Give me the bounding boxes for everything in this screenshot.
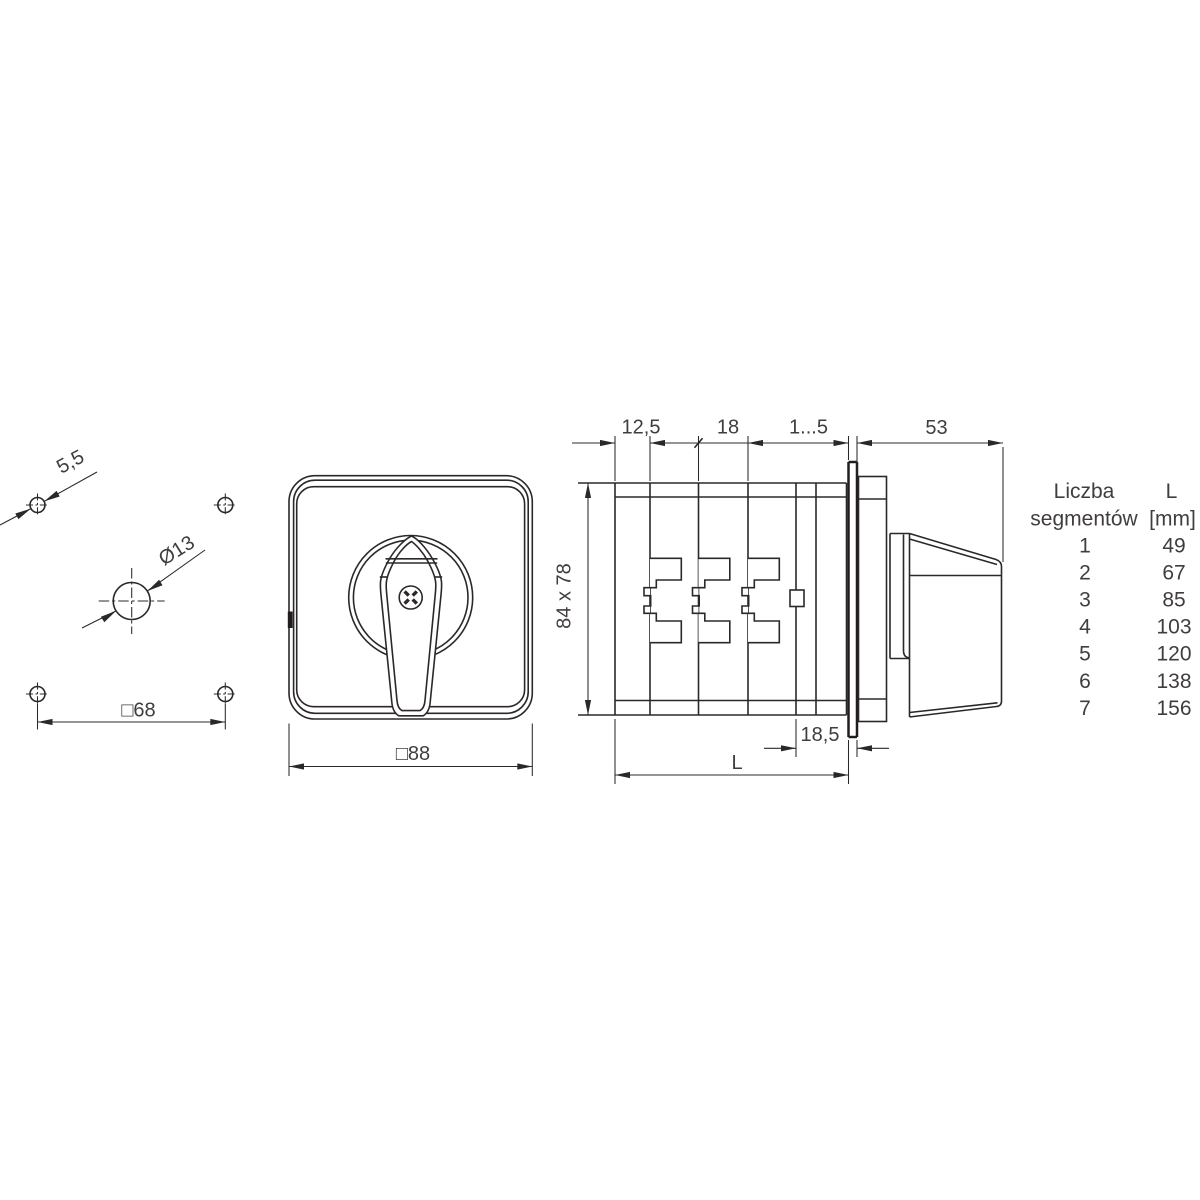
- dim-label-total-length: L: [731, 752, 742, 774]
- cell-segments: 2: [1079, 562, 1091, 585]
- dim-label-front-depth: 18,5: [801, 724, 840, 746]
- position-marker: [288, 612, 293, 629]
- front-bezel-side: [859, 477, 887, 722]
- switch-handle: [380, 536, 442, 716]
- dim-label-handle-depth: 53: [925, 417, 947, 439]
- table-row: 3 85: [1079, 589, 1186, 612]
- dim-label-corner-hole: 5,5: [53, 446, 88, 479]
- dimension-rear-section: 12,5: [572, 417, 665, 482]
- dim-label-hole-spacing: □68: [121, 700, 155, 722]
- dim-label-segment-width: 18: [717, 417, 739, 439]
- table-row: 2 67: [1079, 562, 1186, 585]
- side-view: 12,5 18 1...5 53 84 x 78: [554, 417, 1004, 785]
- knob-collar-side: [890, 534, 910, 659]
- cell-segments: 7: [1079, 697, 1091, 720]
- front-view: □88: [288, 476, 533, 776]
- table-header-col1-line2: segmentów: [1030, 508, 1138, 531]
- table-row: 5 120: [1079, 643, 1191, 666]
- cell-segments: 3: [1079, 589, 1091, 612]
- cell-segments: 1: [1079, 535, 1091, 558]
- dimension-body-height: 84 x 78: [554, 483, 592, 715]
- dimension-corner-hole-diameter: 5,5: [0, 446, 97, 525]
- table-header-col1-line1: Liczba: [1054, 480, 1115, 503]
- dimension-center-hole-diameter: Ø13: [82, 532, 205, 628]
- shaft-end-tab: [790, 590, 804, 607]
- switch-body: [578, 483, 847, 715]
- table-row: 7 156: [1079, 697, 1191, 720]
- table-header-col2-line1: L: [1166, 480, 1178, 503]
- dimension-front-depth: 18,5: [764, 719, 889, 757]
- table-header-col2-line2: [mm]: [1149, 508, 1196, 531]
- mounting-hole-bottom-right: [214, 683, 237, 706]
- cell-length: 138: [1156, 670, 1191, 693]
- dimension-panel-thickness: 1...5: [789, 417, 872, 475]
- mounting-hole-top-left: [26, 494, 49, 517]
- center-screw: [399, 586, 422, 609]
- mounting-panel: [849, 462, 858, 737]
- mounting-hole-bottom-left: [26, 683, 49, 706]
- cam-switch-dimension-drawing: 5,5 Ø13 □68: [0, 0, 1200, 1200]
- table-row: 1 49: [1079, 535, 1186, 558]
- cell-length: 156: [1156, 697, 1191, 720]
- dim-label-center-hole: Ø13: [155, 532, 199, 571]
- table-row: 4 103: [1079, 616, 1191, 639]
- dimension-hole-spacing: □68: [38, 700, 226, 730]
- cell-segments: 6: [1079, 670, 1091, 693]
- dim-label-face-size: □88: [396, 743, 430, 765]
- dim-label-body-height: 84 x 78: [554, 563, 576, 629]
- segments-table: Liczba segmentów L [mm] 1 49 2 67 3 85 4…: [1030, 480, 1196, 720]
- cell-length: 67: [1162, 562, 1185, 585]
- cell-length: 85: [1162, 589, 1185, 612]
- mounting-hole-top-right: [214, 494, 237, 517]
- cell-segments: 5: [1079, 643, 1091, 666]
- cell-length: 103: [1156, 616, 1191, 639]
- technical-drawing-page: 5,5 Ø13 □68: [0, 0, 1200, 1200]
- dim-label-rear-section: 12,5: [622, 417, 661, 439]
- cell-segments: 4: [1079, 616, 1091, 639]
- cell-length: 49: [1162, 535, 1185, 558]
- cell-length: 120: [1156, 643, 1191, 666]
- drill-pattern-view: 5,5 Ø13 □68: [0, 446, 237, 730]
- dim-label-panel-thickness: 1...5: [789, 417, 828, 439]
- knob-side-profile: [910, 534, 1002, 718]
- table-row: 6 138: [1079, 670, 1191, 693]
- dimension-face-size: □88: [289, 724, 532, 777]
- center-shaft-hole: [99, 568, 165, 634]
